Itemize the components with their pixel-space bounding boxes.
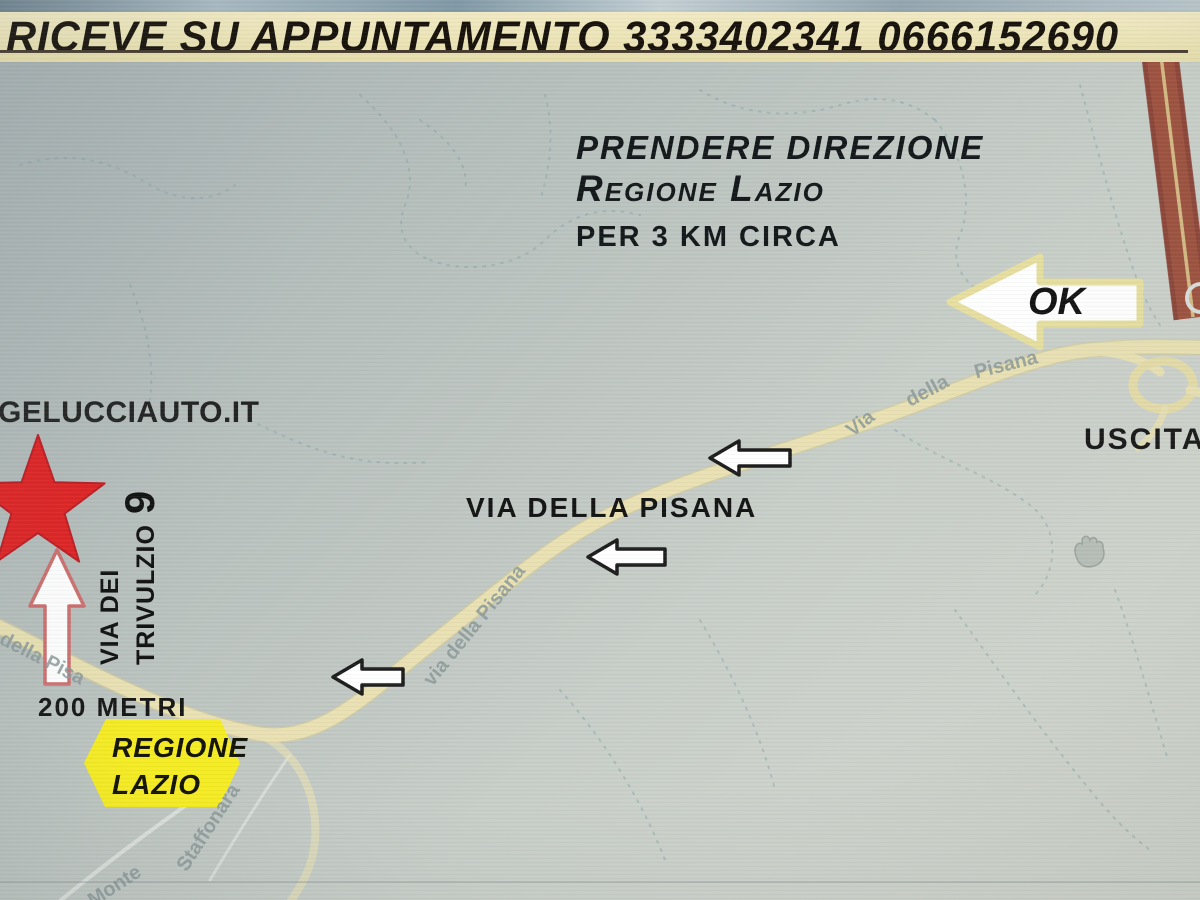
street-name-line-1: VIA DEI (95, 445, 125, 665)
street-number: 9 (116, 491, 163, 514)
directions-note: PRENDERE DIREZIONE Regione Lazio PER 3 K… (576, 131, 984, 252)
appointment-banner: RICEVE SU APPUNTAMENTO 3333402341 066615… (0, 12, 1200, 62)
direction-arrow-2 (588, 540, 665, 574)
street-name-vertical: VIA DEI TRIVULZIO9 (95, 445, 159, 665)
ok-arrow-label: OK (1028, 281, 1085, 324)
hand-cursor-icon (1075, 536, 1104, 567)
map-bottom-edge (0, 881, 1200, 883)
destination-star-marker (0, 435, 105, 562)
appointment-banner-text: RICEVE SU APPUNTAMENTO 3333402341 066615… (6, 13, 1119, 62)
banner-underline (0, 50, 1188, 54)
region-badge-line-1: REGIONE (112, 729, 248, 766)
region-badge-text: REGIONE LAZIO (112, 729, 248, 803)
photo-top-edge (0, 0, 1200, 12)
directions-line-2: Regione Lazio (576, 170, 984, 207)
road-name-label: VIA DELLA PISANA (466, 492, 757, 524)
street-name-line-2: TRIVULZIO9 (125, 445, 161, 665)
exit-label: USCITA (1084, 423, 1200, 457)
highway (1144, 54, 1200, 320)
screenshot-root: della Pisa via della Pisana Via della Pi… (0, 0, 1200, 900)
region-badge-line-2: LAZIO (112, 766, 248, 803)
directions-line-1: PRENDERE DIREZIONE (576, 131, 984, 164)
map-canvas[interactable]: della Pisa via della Pisana Via della Pi… (0, 0, 1200, 900)
directions-line-3: PER 3 KM CIRCA (576, 223, 984, 252)
website-label: GELUCCIAUTO.IT (0, 396, 259, 430)
distance-label: 200 METRI (38, 692, 188, 723)
road-branch-south (262, 735, 315, 900)
